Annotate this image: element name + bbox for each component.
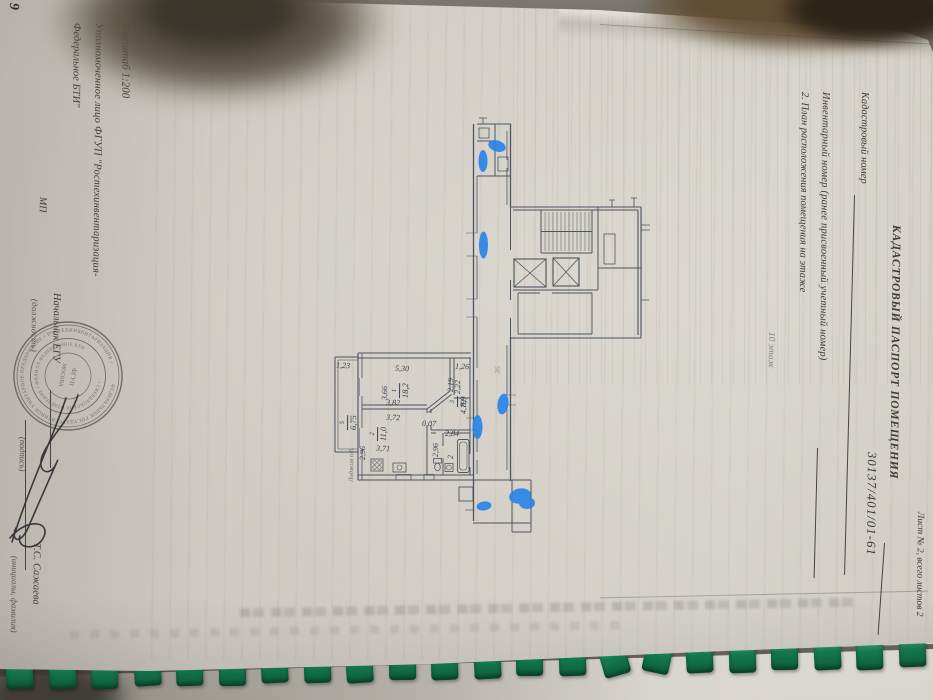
room-area: 6,75 bbox=[347, 415, 358, 430]
dim-3-72: 3,72 bbox=[386, 414, 400, 422]
dim-3-66: 3,66 bbox=[381, 386, 389, 400]
inventory-number-label: Инвентарный номер (ранее присвоенный уче… bbox=[817, 92, 830, 361]
room-label-kitchen: 2 11,0 bbox=[370, 427, 388, 441]
authorized-person-line2: Федеральное БТИ" bbox=[70, 23, 81, 108]
floor-plan-svg bbox=[328, 50, 668, 545]
blue-marker-highlights bbox=[473, 138, 536, 512]
signature bbox=[0, 380, 100, 560]
dim-5-30: 5,30 bbox=[395, 365, 409, 373]
room-label-balcony: 5 6,75 bbox=[340, 415, 358, 430]
dim-1-26: 1,26 bbox=[455, 363, 469, 371]
room-area: 18,2 bbox=[399, 383, 410, 398]
room-label-living: 1 18,2 bbox=[392, 383, 410, 398]
room-number: 1 bbox=[392, 389, 399, 392]
dim-3-71: 3,71 bbox=[376, 445, 390, 453]
dim-1-23: 1,23 bbox=[336, 362, 350, 370]
cadastral-number-label: Кадастровый номер bbox=[858, 92, 869, 184]
authorized-person-line1: Уполномоченное лицо ФГУП "Ростехинвентар… bbox=[90, 23, 103, 277]
name-caption: (инициалы, фамилия) bbox=[10, 556, 19, 633]
mp-seal-label: МП bbox=[37, 197, 47, 213]
room-area: 11,0 bbox=[377, 427, 388, 441]
pencil-note: 36 bbox=[494, 366, 502, 374]
handwritten-page-number: 9 bbox=[6, 3, 20, 10]
room-label-hall: 3 8,9 bbox=[450, 396, 468, 407]
scale-label: Масштаб 1:200 bbox=[119, 23, 131, 98]
room-area-bath: 2 bbox=[447, 455, 455, 459]
dim-2-96-left: 2,96 bbox=[359, 446, 367, 460]
balcony-label: Лоджия п/б. bbox=[349, 447, 356, 482]
room-number: 3 bbox=[450, 400, 457, 403]
dim-2-84: 2,84 bbox=[445, 430, 459, 438]
sheet-info: Лист № 2, всего листов 2 bbox=[913, 512, 924, 617]
dim-2-96-right: 2,96 bbox=[432, 443, 440, 457]
inventory-number-value: 30137/401/01-61 bbox=[864, 452, 878, 556]
document-page: КАДАСТРОВЫЙ ПАСПОРТ ПОМЕЩЕНИЯ Лист № 2, … bbox=[0, 0, 933, 700]
room-area: 8,9 bbox=[457, 396, 468, 407]
room-number: 5 bbox=[340, 421, 347, 424]
photo-of-document: КАДАСТРОВЫЙ ПАСПОРТ ПОМЕЩЕНИЯ Лист № 2, … bbox=[0, 0, 933, 700]
section-title: 2. План расположения помещения на этаже bbox=[796, 92, 809, 292]
dim-0-07: 0,07 bbox=[422, 420, 436, 428]
dim-2-22: 2,22 bbox=[454, 380, 462, 394]
doc-title: КАДАСТРОВЫЙ ПАСПОРТ ПОМЕЩЕНИЯ bbox=[887, 225, 901, 479]
room-number: 2 bbox=[370, 432, 377, 435]
floor-label: 10 этаж bbox=[765, 332, 775, 369]
